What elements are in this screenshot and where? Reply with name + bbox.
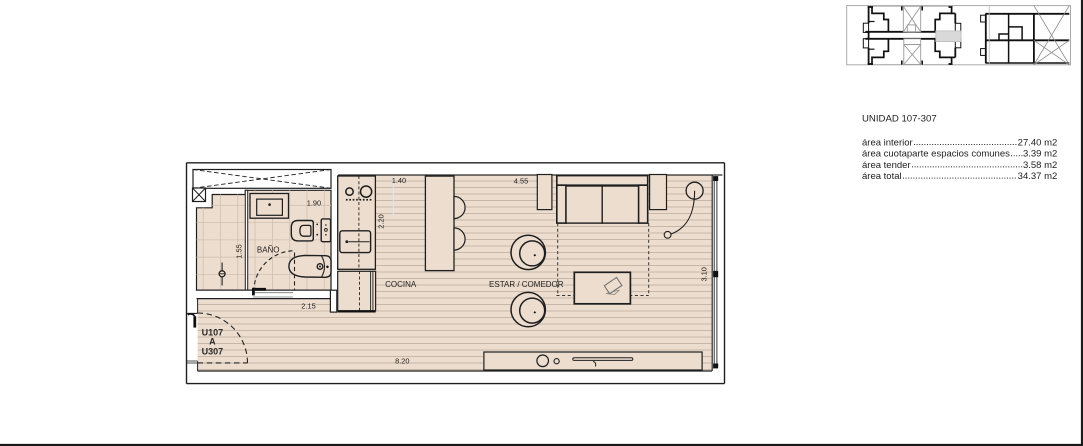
svg-text:BAÑO: BAÑO bbox=[257, 245, 280, 254]
svg-text:A: A bbox=[209, 336, 216, 346]
svg-text:8.20: 8.20 bbox=[395, 357, 409, 366]
svg-text:3.58 m2: 3.58 m2 bbox=[1023, 160, 1057, 171]
svg-text:área tender: área tender bbox=[862, 160, 911, 171]
svg-text:4.55: 4.55 bbox=[514, 177, 528, 186]
svg-text:1.90: 1.90 bbox=[307, 199, 321, 208]
svg-text:UNIDAD 107-307: UNIDAD 107-307 bbox=[862, 114, 937, 125]
svg-text:3.10: 3.10 bbox=[699, 267, 708, 281]
svg-text:1.40: 1.40 bbox=[392, 176, 406, 185]
svg-text:2.15: 2.15 bbox=[301, 302, 315, 311]
svg-text:U307: U307 bbox=[202, 347, 224, 357]
svg-text:3.39 m2: 3.39 m2 bbox=[1023, 149, 1057, 160]
svg-text:ESTAR / COMEDOR: ESTAR / COMEDOR bbox=[489, 280, 564, 289]
svg-text:34.37 m2: 34.37 m2 bbox=[1018, 171, 1058, 182]
svg-text:1.55: 1.55 bbox=[234, 244, 243, 258]
svg-text:27.40 m2: 27.40 m2 bbox=[1018, 138, 1058, 149]
svg-text:área interior: área interior bbox=[862, 138, 913, 149]
svg-text:2.20: 2.20 bbox=[377, 214, 386, 228]
svg-text:área cuotaparte espacios comun: área cuotaparte espacios comunes bbox=[862, 149, 1010, 160]
svg-text:COCINA: COCINA bbox=[385, 280, 417, 289]
svg-text:área total: área total bbox=[862, 171, 902, 182]
